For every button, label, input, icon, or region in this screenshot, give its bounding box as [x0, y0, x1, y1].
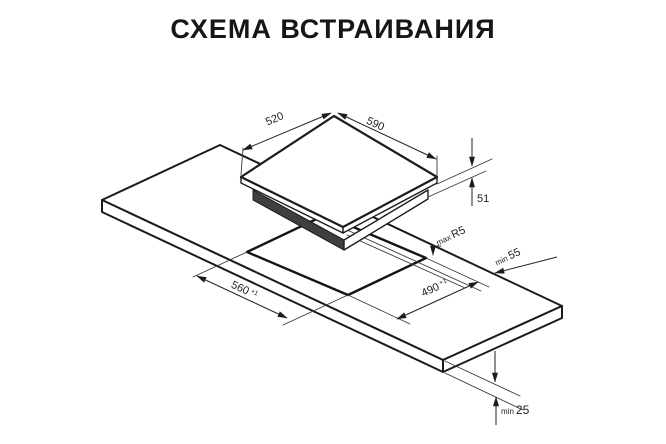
dim-hob-height-label: 51	[477, 193, 489, 205]
dim-corner-radius-label: maxR5	[434, 224, 467, 248]
dim-rear-clearance-label: min55	[493, 246, 523, 268]
dim-rear-clearance: min55	[493, 246, 557, 273]
screenshot-root: СХЕМА ВСТРАИВАНИЯ 560+1	[0, 0, 666, 444]
dim-hob-width-label: 520	[264, 110, 286, 128]
dim-worktop-thickness-label: min25	[501, 403, 530, 417]
installation-diagram: 560+1 490+1 maxR5 min55	[0, 0, 666, 444]
dim-hob-height: 51	[428, 138, 492, 206]
dim-hob-depth-label: 590	[364, 115, 386, 134]
